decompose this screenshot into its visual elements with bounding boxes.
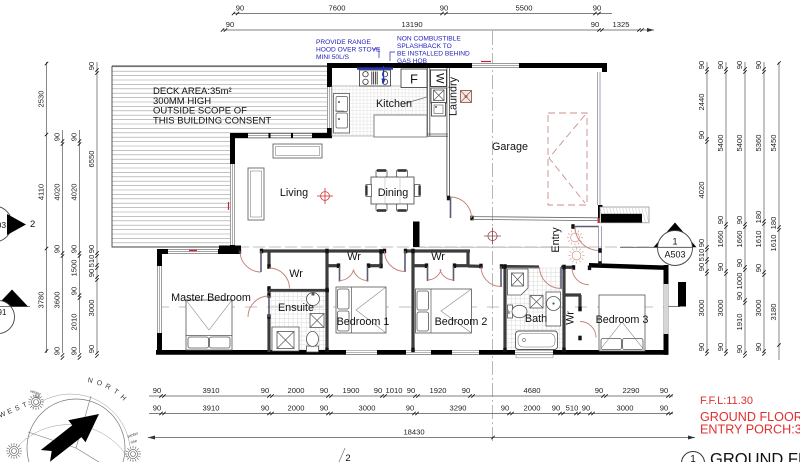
svg-text:ENTRY PORCH:3m²: ENTRY PORCH:3m² <box>700 423 800 437</box>
svg-text:4020: 4020 <box>70 184 79 201</box>
svg-text:Dining: Dining <box>378 187 409 199</box>
svg-text:5450: 5450 <box>769 135 778 152</box>
svg-text:90: 90 <box>87 245 96 253</box>
svg-text:90: 90 <box>716 61 725 69</box>
svg-text:90: 90 <box>320 386 328 395</box>
svg-text:90: 90 <box>697 239 706 247</box>
svg-text:2530: 2530 <box>37 91 46 108</box>
svg-text:90: 90 <box>320 404 328 413</box>
svg-text:90: 90 <box>70 287 79 295</box>
svg-text:90: 90 <box>735 61 744 69</box>
svg-text:Entry: Entry <box>550 227 562 253</box>
svg-text:1: 1 <box>690 454 696 462</box>
svg-text:4110: 4110 <box>37 184 46 200</box>
svg-text:THIS BUILDING CONSENT: THIS BUILDING CONSENT <box>153 115 271 126</box>
svg-text:90: 90 <box>407 386 415 395</box>
svg-text:90: 90 <box>462 386 470 395</box>
svg-text:90: 90 <box>660 386 668 395</box>
svg-text:90: 90 <box>754 343 763 351</box>
svg-text:1: 1 <box>672 237 677 247</box>
svg-text:180: 180 <box>769 217 778 230</box>
svg-text:90: 90 <box>87 269 96 277</box>
svg-text:Laundry: Laundry <box>448 76 460 116</box>
svg-text:90: 90 <box>582 404 590 413</box>
svg-text:1900: 1900 <box>343 386 360 395</box>
svg-text:3180: 3180 <box>769 304 778 321</box>
svg-text:3600: 3600 <box>53 292 62 309</box>
svg-text:90: 90 <box>735 292 744 300</box>
svg-text:90: 90 <box>261 404 269 413</box>
svg-text:5400: 5400 <box>735 135 744 152</box>
svg-text:3000: 3000 <box>359 404 376 413</box>
svg-text:4020: 4020 <box>53 184 62 201</box>
svg-text:13190: 13190 <box>401 20 422 29</box>
svg-text:90: 90 <box>595 386 603 395</box>
svg-text:90: 90 <box>716 216 725 224</box>
svg-text:90: 90 <box>697 343 706 351</box>
svg-text:A503: A503 <box>664 250 685 260</box>
svg-text:90: 90 <box>735 259 744 267</box>
svg-text:3000: 3000 <box>87 300 96 317</box>
svg-text:Bedroom 2: Bedroom 2 <box>435 316 488 328</box>
svg-text:6550: 6550 <box>87 151 96 168</box>
svg-text:2440: 2440 <box>697 94 706 111</box>
svg-text:18430: 18430 <box>403 428 424 437</box>
svg-text:90: 90 <box>87 345 96 353</box>
svg-text:503: 503 <box>0 220 6 230</box>
svg-text:1000: 1000 <box>735 273 744 290</box>
svg-text:90: 90 <box>236 4 244 13</box>
svg-text:Living: Living <box>280 187 308 199</box>
svg-text:2000: 2000 <box>288 404 305 413</box>
svg-text:90: 90 <box>697 61 706 69</box>
svg-text:Bedroom 1: Bedroom 1 <box>337 316 390 328</box>
svg-text:Bedroom 3: Bedroom 3 <box>596 314 649 326</box>
svg-text:1610: 1610 <box>754 231 763 248</box>
svg-text:2: 2 <box>30 219 35 230</box>
svg-text:90: 90 <box>660 404 668 413</box>
svg-text:Ensuite: Ensuite <box>278 302 314 314</box>
svg-text:1610: 1610 <box>769 235 778 252</box>
svg-text:90: 90 <box>440 4 448 13</box>
svg-text:3000: 3000 <box>697 300 706 317</box>
svg-text:3000: 3000 <box>754 300 763 317</box>
svg-text:F: F <box>410 72 418 87</box>
svg-text:F.F.L:11.30: F.F.L:11.30 <box>700 395 753 407</box>
svg-text:90: 90 <box>53 347 62 355</box>
svg-text:2000: 2000 <box>288 386 305 395</box>
svg-text:90: 90 <box>87 62 96 70</box>
svg-text:3910: 3910 <box>203 404 220 413</box>
svg-text:90: 90 <box>754 61 763 69</box>
svg-text:5500: 5500 <box>516 4 533 13</box>
svg-text:MINI 50L/S: MINI 50L/S <box>316 54 350 61</box>
svg-text:1920: 1920 <box>430 386 447 395</box>
svg-text:3000: 3000 <box>716 300 725 317</box>
svg-text:2290: 2290 <box>623 386 640 395</box>
svg-text:90: 90 <box>552 404 560 413</box>
svg-text:90: 90 <box>754 264 763 272</box>
svg-text:GAS HOB: GAS HOB <box>397 58 428 65</box>
svg-text:3290: 3290 <box>450 404 467 413</box>
svg-text:NON COMBUSTIBLE: NON COMBUSTIBLE <box>397 36 461 43</box>
svg-text:90: 90 <box>697 131 706 139</box>
svg-text:Garage: Garage <box>492 141 528 153</box>
svg-text:3780: 3780 <box>37 292 46 309</box>
svg-text:Wr: Wr <box>565 311 577 325</box>
svg-text:90: 90 <box>226 20 234 29</box>
svg-text:90: 90 <box>70 347 79 355</box>
svg-text:90: 90 <box>735 216 744 224</box>
svg-text:Master Bedroom: Master Bedroom <box>171 292 251 304</box>
svg-text:90: 90 <box>406 404 414 413</box>
svg-text:90: 90 <box>53 245 62 253</box>
svg-text:2: 2 <box>345 453 350 462</box>
svg-text:90: 90 <box>591 20 599 29</box>
svg-text:90: 90 <box>735 345 744 353</box>
svg-text:SPLASHBACK TO: SPLASHBACK TO <box>397 43 452 50</box>
svg-text:Kitchen: Kitchen <box>376 98 412 110</box>
svg-text:91: 91 <box>0 308 7 317</box>
svg-text:GROUND FLOOR: GROUND FLOOR <box>710 451 800 462</box>
svg-text:PROVIDE RANGE: PROVIDE RANGE <box>316 39 372 46</box>
svg-text:Bath: Bath <box>525 313 547 325</box>
svg-text:5360: 5360 <box>754 135 763 152</box>
svg-text:510: 510 <box>697 249 706 262</box>
svg-text:90: 90 <box>153 386 161 395</box>
svg-text:HOOD OVER STOVE: HOOD OVER STOVE <box>316 47 381 54</box>
svg-text:Wr: Wr <box>289 268 303 280</box>
svg-text:1500: 1500 <box>70 260 79 277</box>
svg-text:1010: 1010 <box>386 386 403 395</box>
svg-text:Wr: Wr <box>431 251 445 263</box>
svg-text:5400: 5400 <box>716 135 725 152</box>
svg-text:90: 90 <box>70 133 79 141</box>
svg-text:1325: 1325 <box>613 20 630 29</box>
svg-text:W: W <box>434 73 446 84</box>
svg-text:180: 180 <box>754 211 763 224</box>
svg-text:90: 90 <box>593 4 601 13</box>
svg-text:1910: 1910 <box>735 314 744 331</box>
svg-text:90: 90 <box>501 404 509 413</box>
svg-text:7600: 7600 <box>329 4 346 13</box>
svg-text:1660: 1660 <box>735 231 744 248</box>
svg-text:2010: 2010 <box>70 314 79 331</box>
svg-text:90: 90 <box>53 133 62 141</box>
svg-text:Wr: Wr <box>347 251 361 263</box>
svg-text:BE INSTALLED BEHIND: BE INSTALLED BEHIND <box>397 51 470 58</box>
svg-text:90: 90 <box>697 263 706 271</box>
svg-text:90: 90 <box>374 386 382 395</box>
svg-text:3000: 3000 <box>617 404 634 413</box>
svg-text:4020: 4020 <box>697 182 706 199</box>
svg-text:510: 510 <box>566 404 579 413</box>
svg-text:1660: 1660 <box>716 231 725 248</box>
svg-text:90: 90 <box>716 263 725 271</box>
svg-text:90: 90 <box>716 343 725 351</box>
svg-text:90: 90 <box>70 245 79 253</box>
svg-text:3910: 3910 <box>203 386 220 395</box>
svg-text:510: 510 <box>87 255 96 268</box>
svg-text:4680: 4680 <box>524 386 541 395</box>
svg-text:2000: 2000 <box>524 404 541 413</box>
svg-text:90: 90 <box>153 404 161 413</box>
svg-text:90: 90 <box>261 386 269 395</box>
